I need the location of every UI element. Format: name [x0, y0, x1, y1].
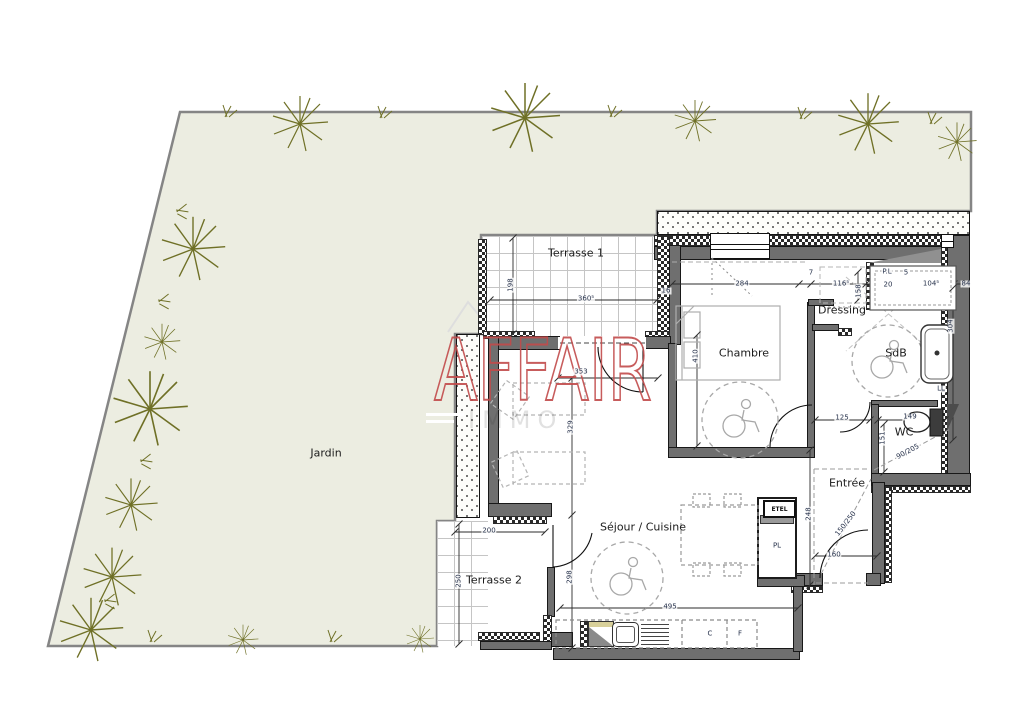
room-label-jardin: Jardin — [310, 447, 341, 460]
wall-wedge — [868, 249, 941, 263]
dimension-label: 104⁵ — [922, 281, 940, 288]
dimension-label: 116⁵ — [832, 281, 850, 288]
room-label-terrasse1: Terrasse 1 — [548, 247, 604, 260]
watermark-dash — [426, 420, 454, 423]
dimension-label: 353 — [573, 369, 588, 376]
dimension-label: 151 — [880, 430, 887, 445]
watermark-dash — [426, 413, 464, 416]
dimension-label: 200 — [481, 528, 496, 535]
room-label-wc: WC — [895, 426, 914, 439]
dimension-label: 160 — [826, 552, 841, 559]
room-label-entree: Entrée — [829, 477, 865, 490]
dimension-label: F — [737, 631, 743, 638]
floor-plan-canvas: ETEL — [0, 0, 1023, 720]
dimension-label: 158 — [856, 283, 863, 298]
dimension-label: 5 — [903, 270, 909, 277]
dimension-label: C — [707, 631, 714, 638]
room-label-sdb: SdB — [885, 347, 907, 360]
dimension-label: 125 — [834, 415, 849, 422]
dimension-label: 284 — [734, 281, 749, 288]
linework-layer — [0, 0, 1023, 720]
dimension-label: 304 — [948, 318, 955, 333]
dimension-label: LL — [936, 386, 946, 393]
room-label-terrasse2: Terrasse 2 — [466, 574, 522, 587]
dimension-label: P.L — [881, 269, 892, 276]
etel-label: ETEL — [771, 506, 787, 513]
dimension-label: PL — [772, 543, 782, 550]
dimension-label: 329 — [568, 419, 575, 434]
dimension-label: 7 — [808, 270, 814, 277]
dimension-label: 16 — [661, 288, 672, 295]
toilet-tank — [930, 409, 943, 436]
room-label-sejour: Séjour / Cuisine — [600, 521, 686, 534]
dimension-label: 495 — [662, 604, 677, 611]
dimension-label: 198 — [508, 277, 515, 292]
dimension-label: 248 — [806, 506, 813, 521]
bathroom-fixtures — [868, 249, 959, 436]
door-swings — [553, 347, 870, 578]
etel-unit: ETEL — [763, 500, 796, 518]
room-label-dressing: Dressing — [818, 304, 866, 317]
dimension-label: 84 — [961, 281, 972, 288]
dimension-label: 360⁵ — [577, 296, 595, 303]
dimension-label: 20 — [883, 282, 894, 289]
dimension-label: 250 — [456, 573, 463, 588]
dimension-label: 298 — [567, 569, 574, 584]
dimension-label: 410 — [693, 348, 700, 363]
dimension-label: 149 — [902, 414, 917, 421]
room-label-chambre: Chambre — [719, 347, 769, 360]
